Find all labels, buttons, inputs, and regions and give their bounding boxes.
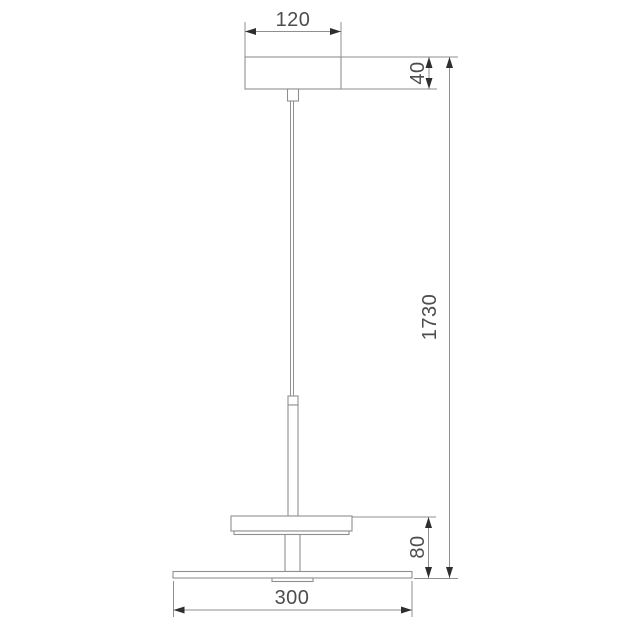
pendant-lamp-technical-drawing: 120 40 1730 80: [0, 0, 630, 630]
dimension-overall-drop: 1730: [419, 57, 453, 578]
arrow-left-icon: [245, 28, 256, 35]
arrow-down-icon: [425, 567, 432, 578]
large-base-disc: [173, 572, 412, 579]
ceiling-canopy: [245, 57, 341, 89]
dimension-label-1730: 1730: [419, 294, 441, 341]
dimension-label-300: 300: [275, 587, 310, 609]
cable-connector-block: [288, 89, 299, 101]
arrow-up-icon: [446, 57, 453, 68]
dimension-shade-height: 80: [352, 517, 458, 579]
dimension-canopy-height: 40: [341, 57, 458, 89]
arrow-left-icon: [174, 607, 185, 614]
lamp-geometry: [173, 57, 412, 582]
arrow-right-icon: [401, 607, 412, 614]
suspension-rod: [288, 405, 298, 516]
dimension-label-80: 80: [407, 535, 429, 558]
arrow-up-icon: [425, 517, 432, 528]
arrow-down-icon: [446, 567, 453, 578]
arrow-right-icon: [330, 28, 341, 35]
drawing-canvas: 120 40 1730 80: [0, 0, 630, 630]
dimension-label-40: 40: [407, 61, 429, 84]
under-disc-fitting: [272, 578, 313, 582]
rod-top-cap: [288, 396, 298, 405]
dimension-base-width: 300: [174, 581, 413, 617]
dimension-canopy-width: 120: [245, 9, 341, 57]
lower-stem: [285, 535, 300, 572]
dimension-label-120: 120: [276, 9, 311, 31]
small-disc-shade: [231, 516, 352, 531]
